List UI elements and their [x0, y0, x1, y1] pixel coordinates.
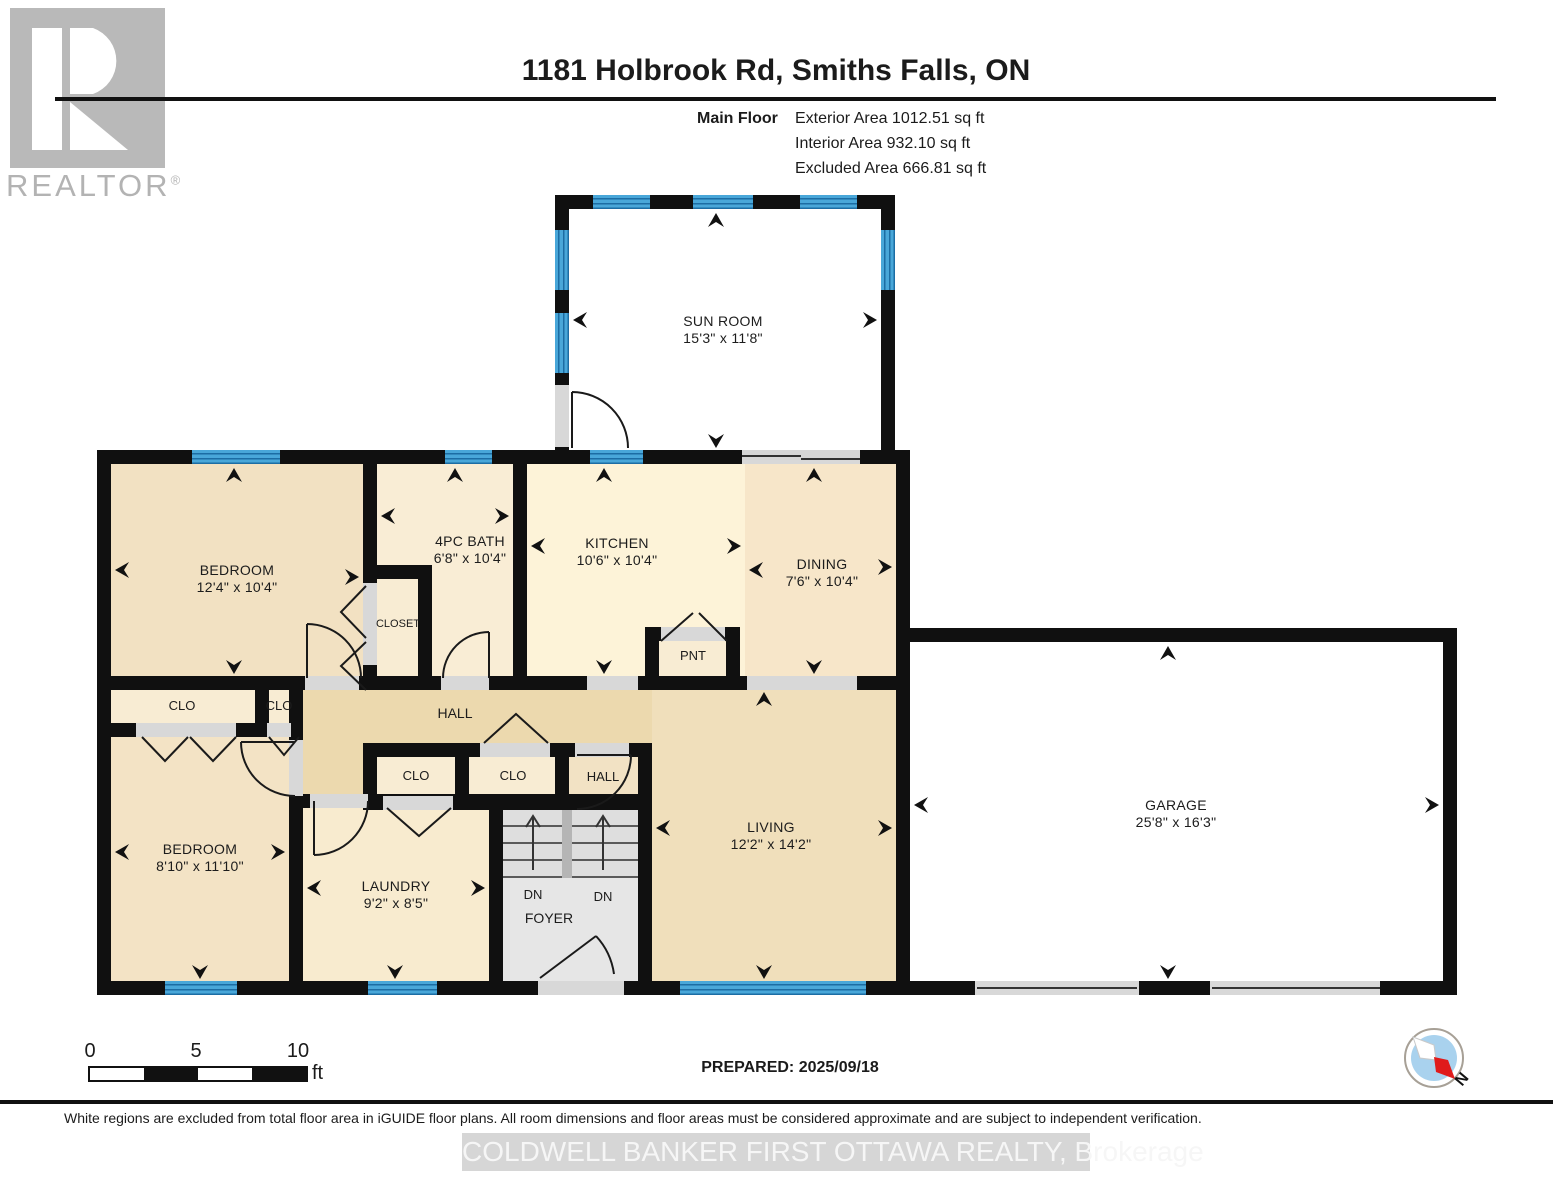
- brokerage-watermark: COLDWELL BANKER FIRST OTTAWA REALTY, Bro…: [462, 1133, 1090, 1171]
- disclaimer-text: White regions are excluded from total fl…: [64, 1110, 1202, 1126]
- label-dn: DN: [524, 887, 543, 902]
- room-label-sunroom: SUN ROOM15'3" x 11'8": [683, 313, 763, 347]
- label-closet: CLOSET: [376, 618, 420, 630]
- scale-seg: [198, 1068, 252, 1080]
- room-label-dining: DINING7'6" x 10'4": [786, 556, 859, 590]
- compass-rose: N: [1398, 1024, 1474, 1096]
- label-pantry: PNT: [680, 648, 706, 663]
- room-label-living: LIVING12'2" x 14'2": [731, 819, 812, 853]
- compass: N: [1398, 1024, 1474, 1096]
- footer-rule: [0, 1100, 1553, 1104]
- prepared-date: PREPARED: 2025/09/18: [701, 1059, 879, 1077]
- scale-seg: [144, 1068, 198, 1080]
- label-clo: CLO: [500, 768, 527, 783]
- room-label-bath: 4PC BATH6'8" x 10'4": [434, 533, 507, 567]
- scale-tick-0: 0: [84, 1040, 95, 1063]
- label-foyer: FOYER: [525, 910, 573, 926]
- floor-plan-page: REALTOR® 1181 Holbrook Rd, Smiths Falls,…: [0, 0, 1553, 1200]
- stair-arrows: [526, 816, 610, 870]
- label-clo: CLO: [266, 698, 293, 713]
- direction-arrows: [115, 213, 1439, 979]
- label-clo: CLO: [169, 698, 196, 713]
- scale-unit: ft: [312, 1062, 323, 1085]
- room-label-bedroom2: BEDROOM8'10" x 11'10": [156, 841, 244, 875]
- label-hall-small: HALL: [587, 769, 620, 784]
- label-dn: DN: [594, 889, 613, 904]
- slider-garage-lines: [742, 456, 1380, 988]
- label-hall: HALL: [437, 705, 472, 721]
- scale-seg: [252, 1068, 306, 1080]
- scale-seg: [90, 1068, 144, 1080]
- floorplan-annotations: [0, 0, 1553, 1200]
- scale-tick-10: 10: [287, 1040, 309, 1063]
- room-label-garage: GARAGE25'8" x 16'3": [1136, 797, 1217, 831]
- room-label-bedroom1: BEDROOM12'4" x 10'4": [197, 562, 278, 596]
- scale-tick-5: 5: [190, 1040, 201, 1063]
- label-clo: CLO: [403, 768, 430, 783]
- room-label-kitchen: KITCHEN10'6" x 10'4": [577, 535, 658, 569]
- bifold-doors: [142, 586, 548, 836]
- room-label-laundry: LAUNDRY9'2" x 8'5": [362, 878, 431, 912]
- scale-bar-rule: [88, 1066, 308, 1082]
